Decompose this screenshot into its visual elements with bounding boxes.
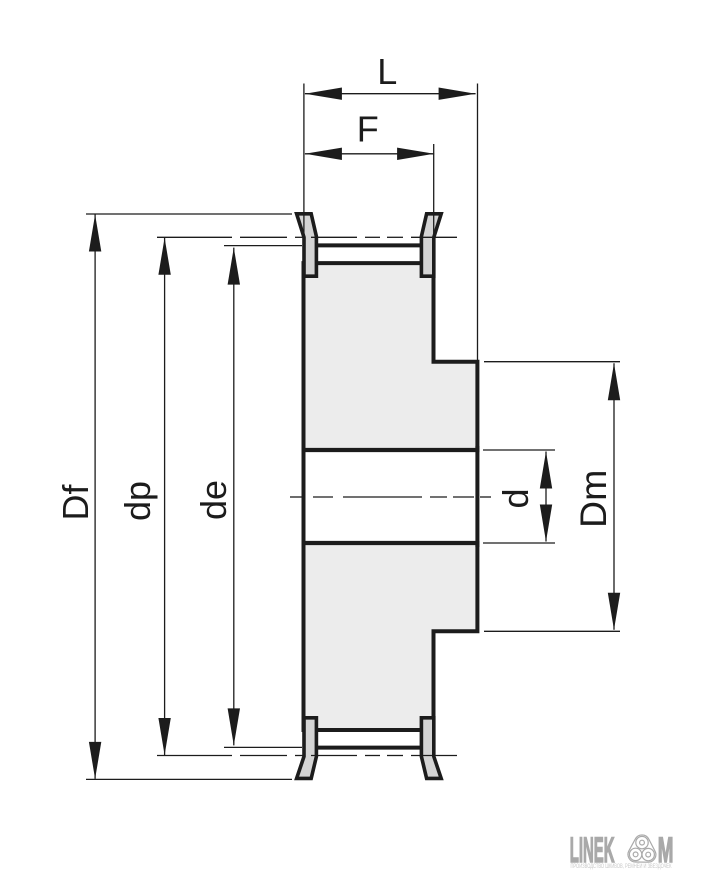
svg-text:L: L (377, 51, 397, 92)
svg-text:Dm: Dm (572, 470, 614, 528)
svg-text:F: F (357, 109, 379, 150)
svg-text:ПРОИЗВОДСТВО ШКИВОВ, РЕМНЕЙ И: ПРОИЗВОДСТВО ШКИВОВ, РЕМНЕЙ И ЗВЕЗДОЧЕК (571, 861, 672, 870)
svg-text:d: d (495, 488, 536, 508)
svg-text:dp: dp (117, 481, 158, 521)
svg-text:de: de (193, 480, 234, 520)
svg-text:Df: Df (55, 484, 96, 521)
